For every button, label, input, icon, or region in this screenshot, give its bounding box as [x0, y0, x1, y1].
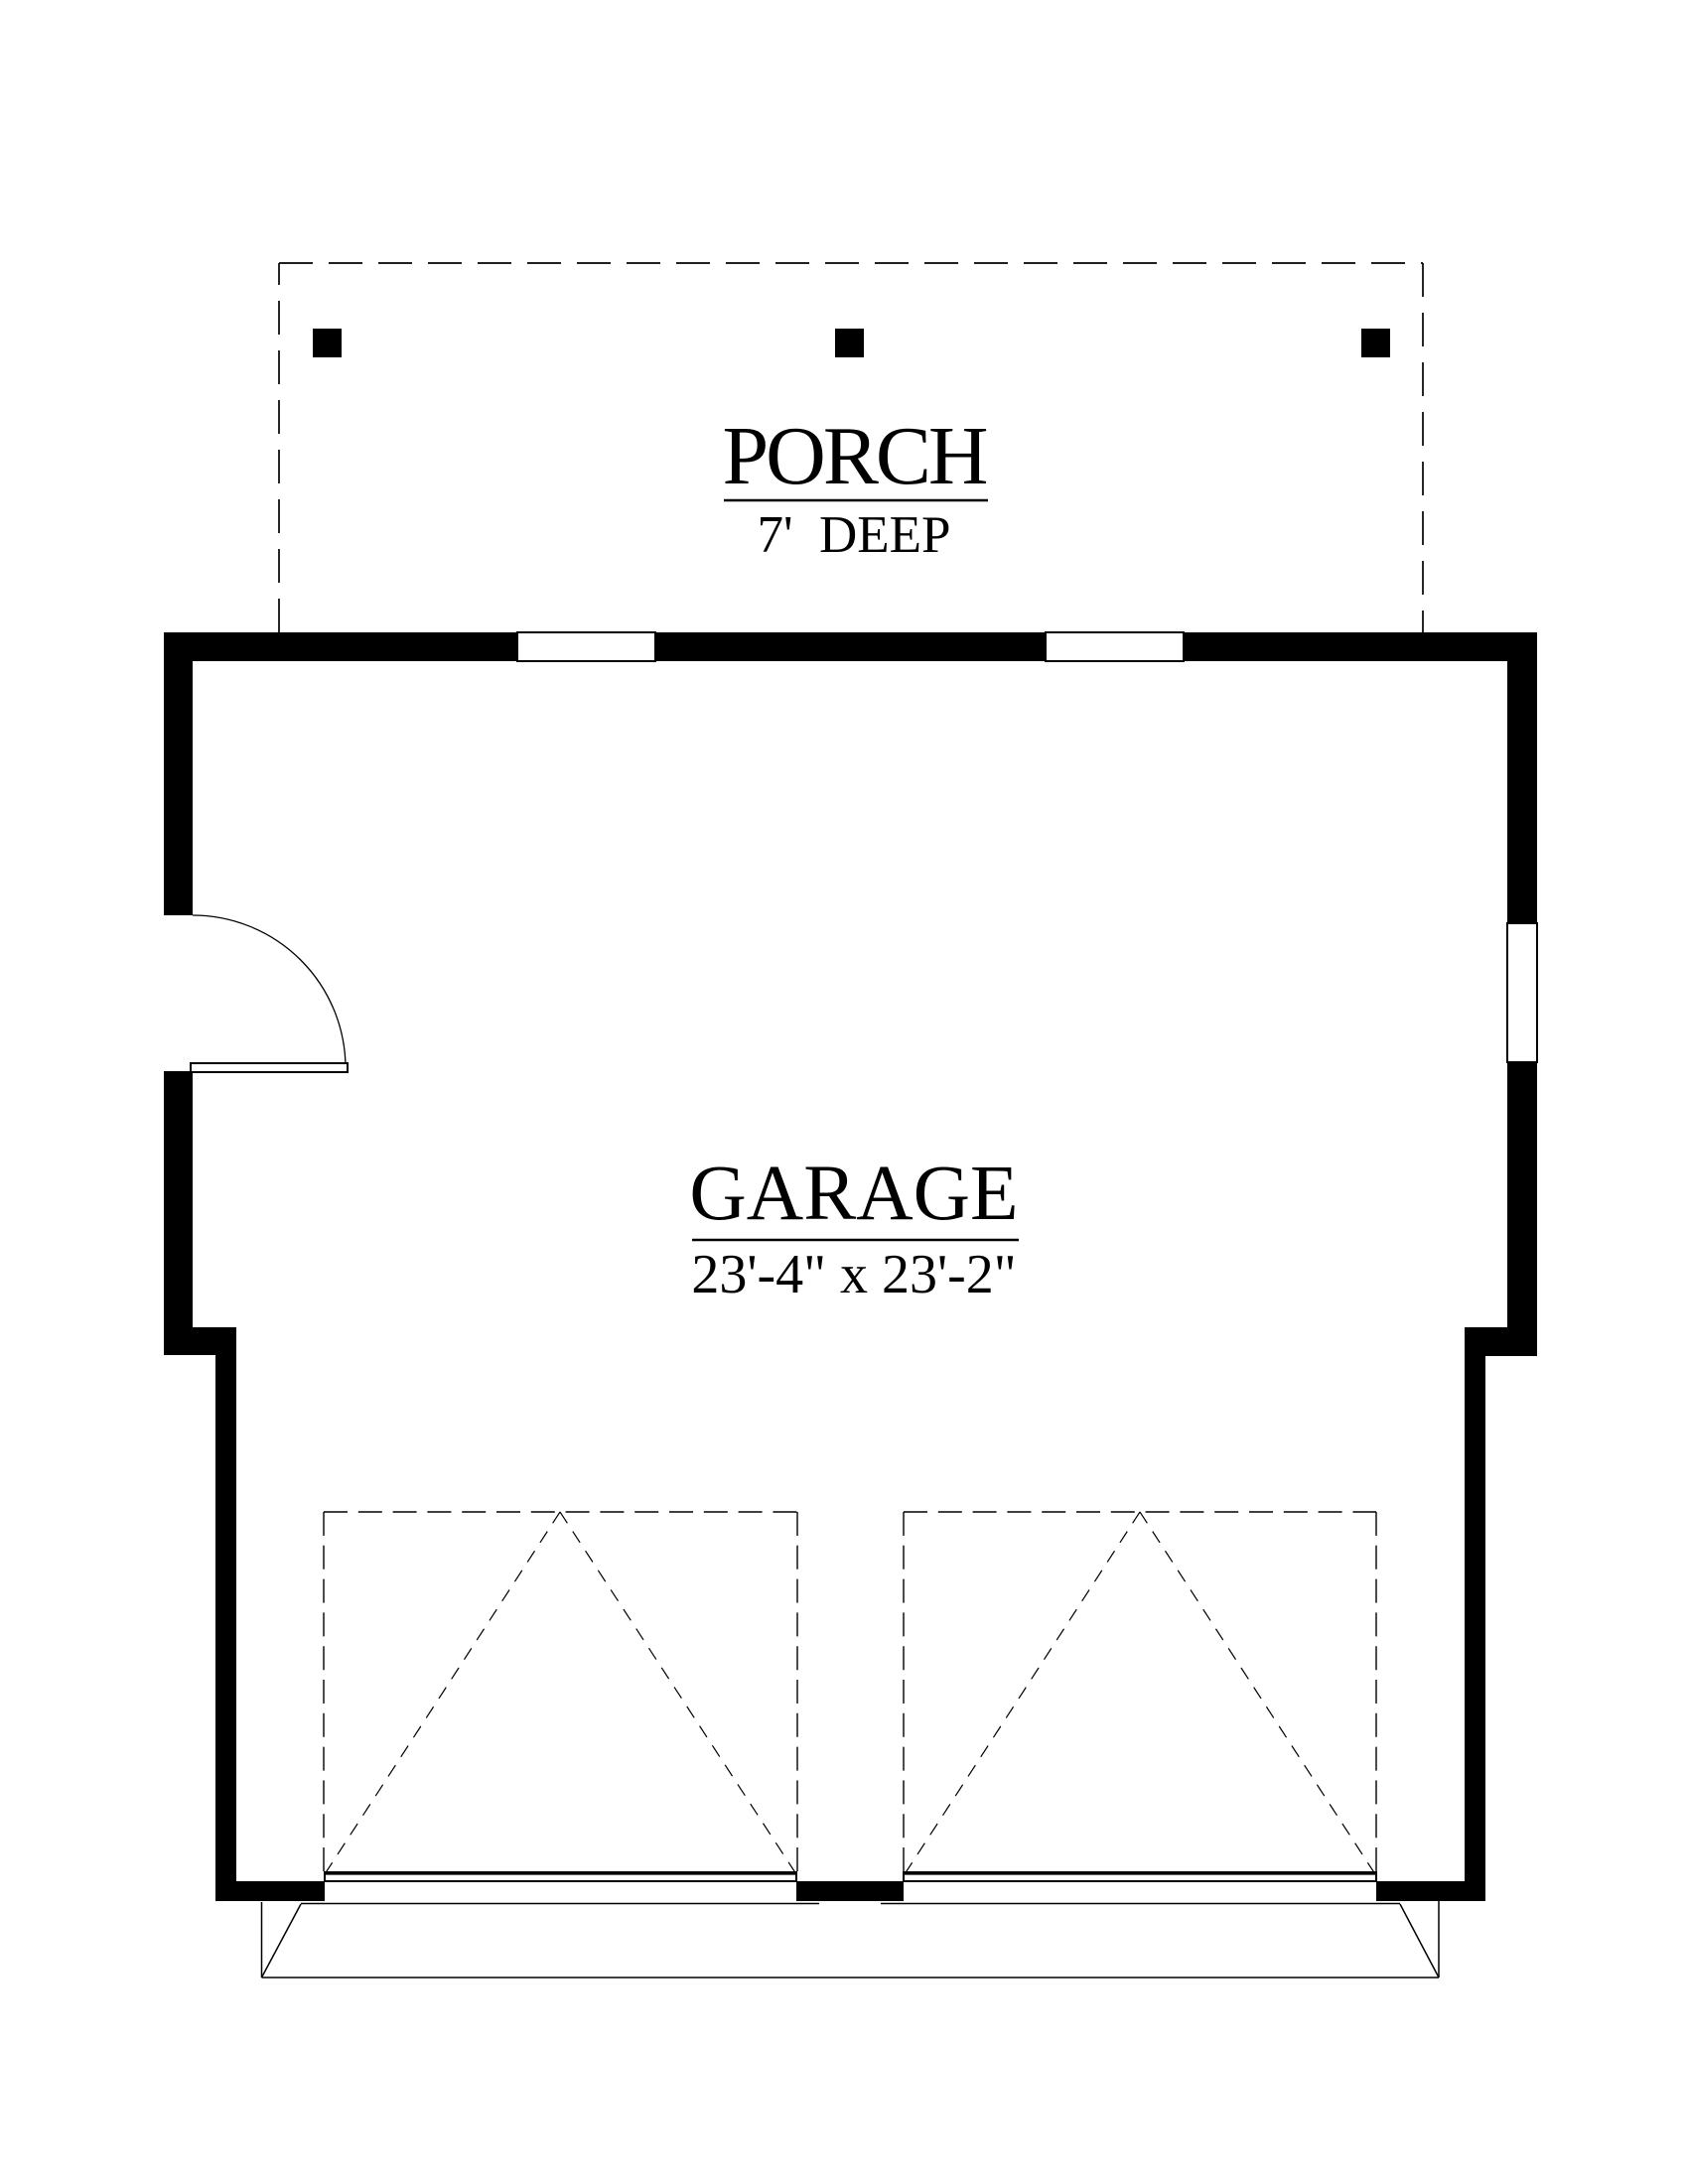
svg-text:7' DEEP: 7' DEEP: [757, 506, 950, 564]
svg-text:GARAGE: GARAGE: [689, 1150, 1018, 1237]
svg-text:23'-4" x 23'-2": 23'-4" x 23'-2": [691, 1244, 1016, 1305]
svg-text:PORCH: PORCH: [722, 410, 986, 502]
